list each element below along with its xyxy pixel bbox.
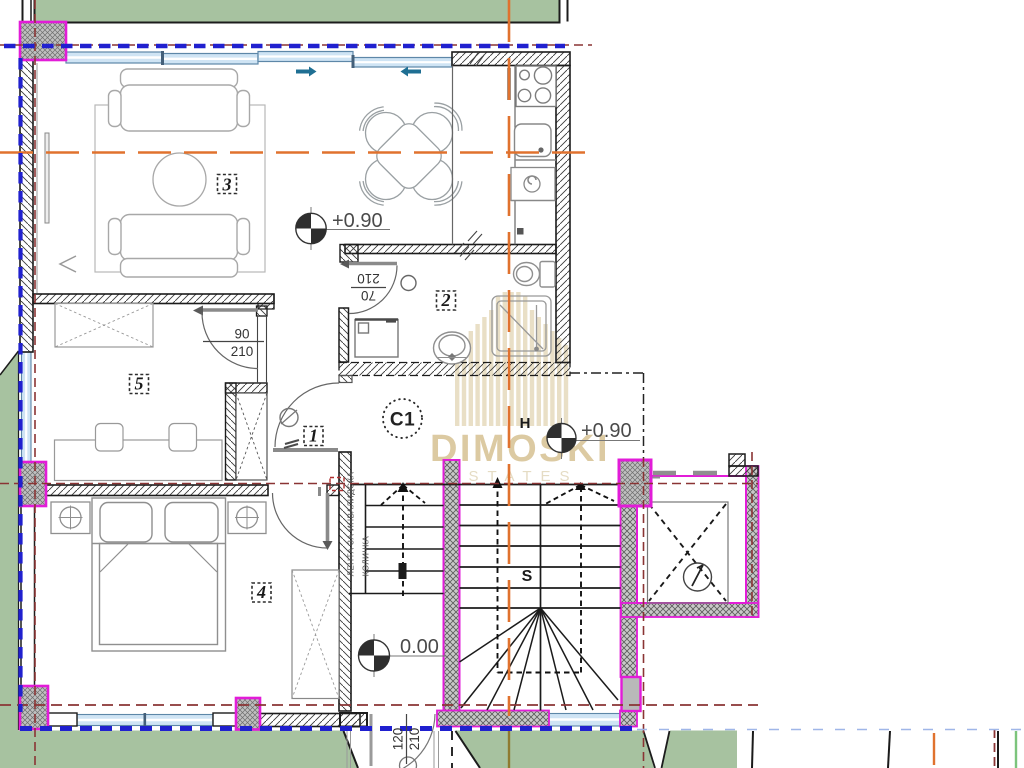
svg-text:90: 90 bbox=[234, 327, 249, 342]
svg-text:КОЛИЧКА: КОЛИЧКА bbox=[362, 536, 371, 577]
svg-text:+0.90: +0.90 bbox=[332, 210, 383, 232]
svg-text:5: 5 bbox=[135, 374, 144, 394]
svg-text:4: 4 bbox=[256, 582, 266, 602]
svg-text:H: H bbox=[520, 415, 531, 432]
svg-text:70: 70 bbox=[361, 288, 376, 303]
svg-text:120: 120 bbox=[391, 728, 406, 751]
svg-text:210: 210 bbox=[357, 271, 380, 286]
svg-text:210: 210 bbox=[231, 344, 254, 359]
svg-text:3: 3 bbox=[222, 175, 232, 195]
svg-text:ESTATES: ESTATES bbox=[449, 468, 578, 485]
svg-text:1: 1 bbox=[309, 426, 318, 446]
svg-text:2: 2 bbox=[441, 290, 451, 310]
svg-text:+0.90: +0.90 bbox=[581, 420, 632, 442]
svg-text:C1: C1 bbox=[390, 410, 415, 431]
svg-text:S: S bbox=[522, 568, 533, 585]
svg-text:210: 210 bbox=[407, 728, 422, 751]
svg-text:0.00: 0.00 bbox=[400, 636, 439, 658]
svg-text:ЛЕНТА ЗА ИНВАЛИДСКА: ЛЕНТА ЗА ИНВАЛИДСКА bbox=[347, 471, 356, 576]
